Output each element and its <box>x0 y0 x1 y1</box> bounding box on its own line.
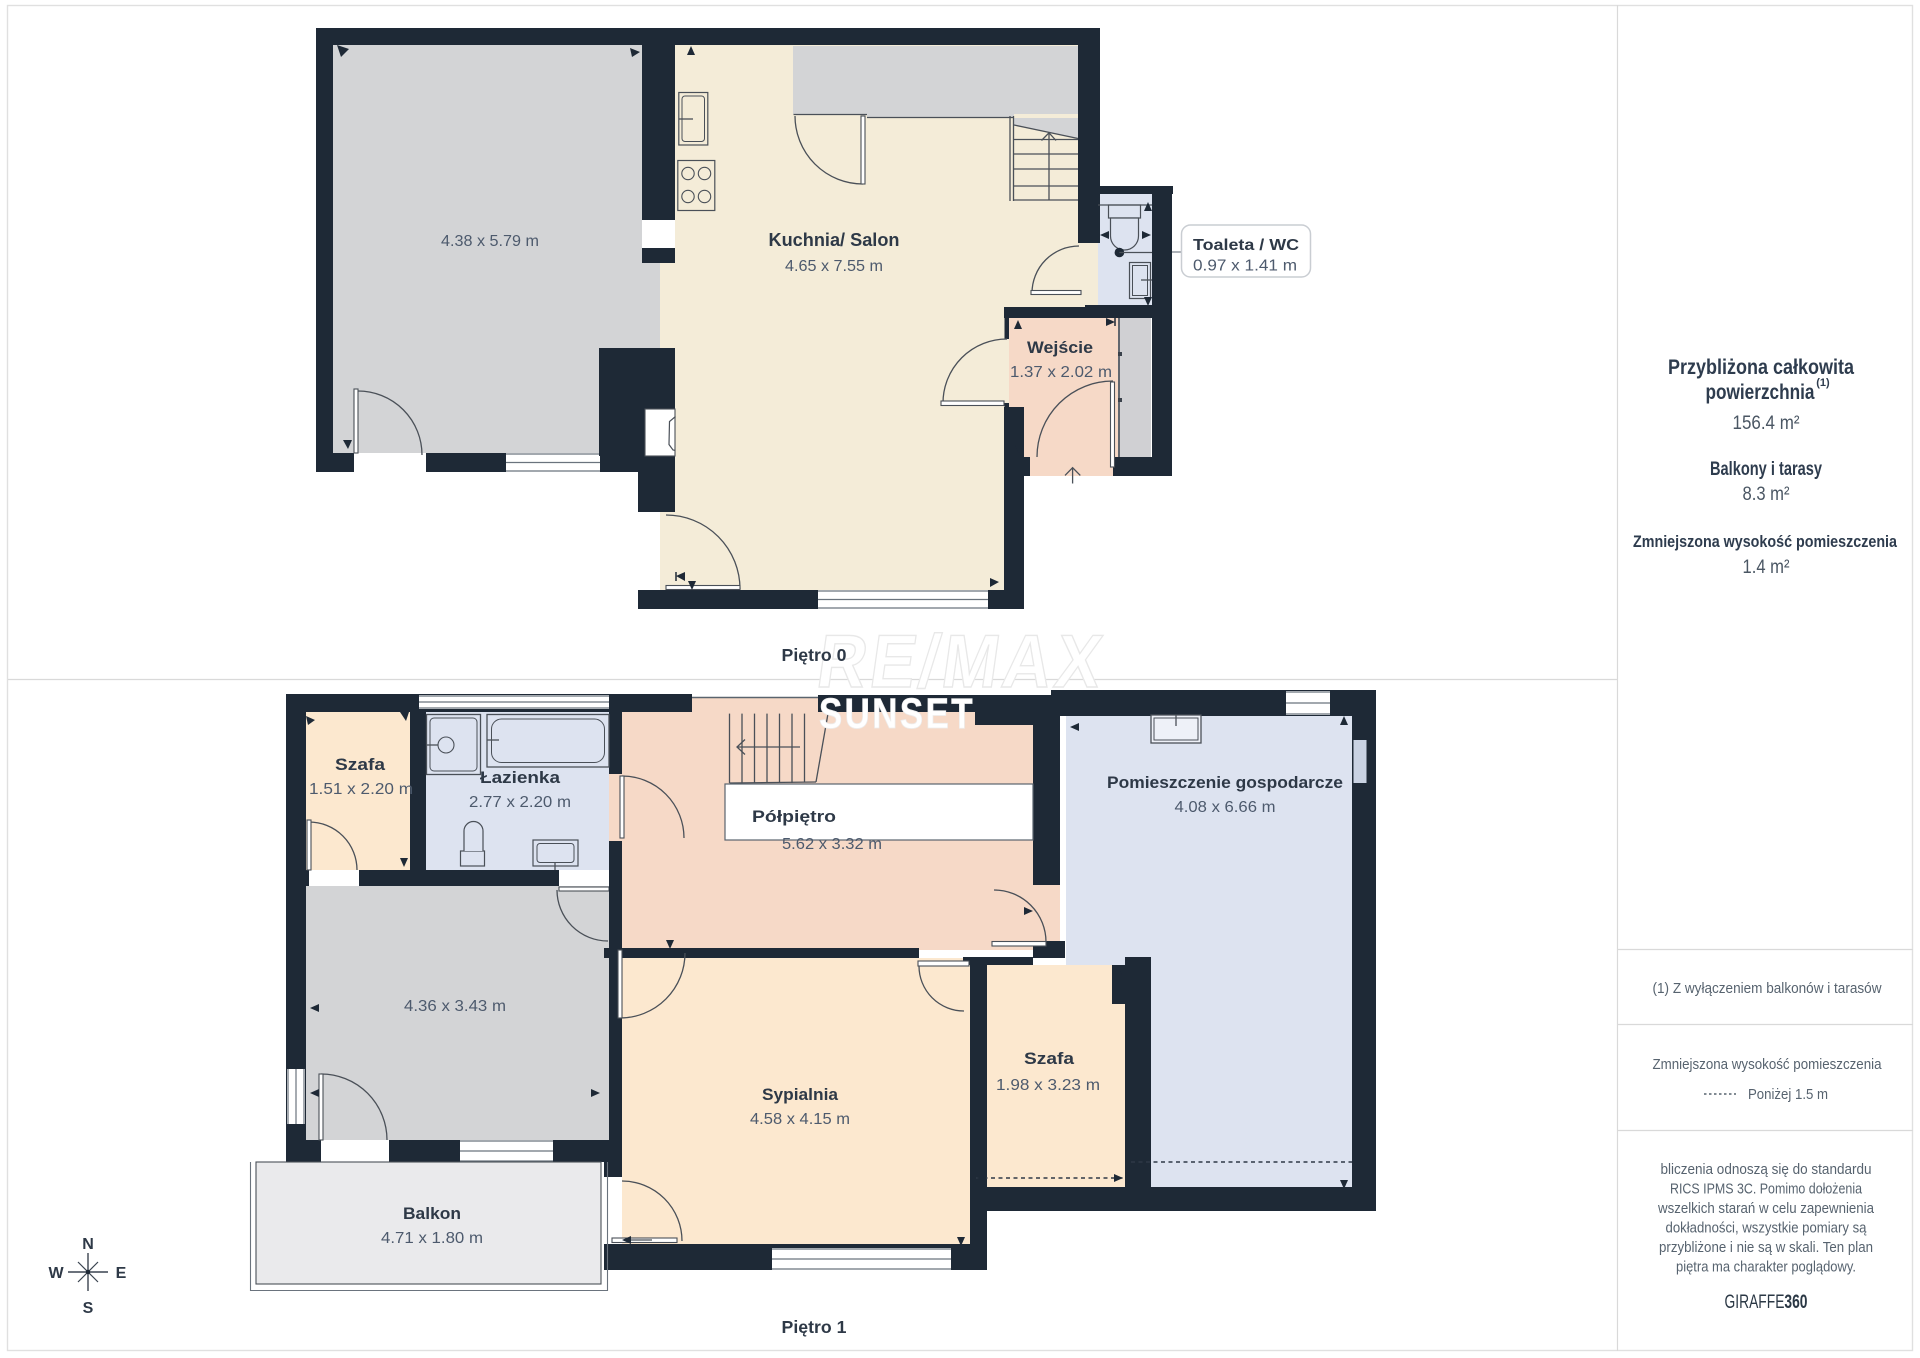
svg-text:wszelkich starań w celu zapewn: wszelkich starań w celu zapewnienia <box>1657 1201 1875 1217</box>
svg-text:dokładności, wszystkie pomiary: dokładności, wszystkie pomiary są <box>1666 1221 1868 1237</box>
svg-text:Balkon: Balkon <box>403 1204 461 1223</box>
svg-text:4.38 x 5.79 m: 4.38 x 5.79 m <box>441 233 539 250</box>
svg-text:8.3 m²: 8.3 m² <box>1743 484 1790 505</box>
svg-text:4.71 x 1.80 m: 4.71 x 1.80 m <box>381 1230 483 1247</box>
svg-text:N: N <box>82 1236 94 1253</box>
svg-text:Wejście: Wejście <box>1027 338 1093 357</box>
svg-text:1.98 x 3.23 m: 1.98 x 3.23 m <box>996 1077 1100 1094</box>
svg-text:Pomieszczenie gospodarcze: Pomieszczenie gospodarcze <box>1107 773 1343 792</box>
svg-text:Zmniejszona wysokość pomieszcz: Zmniejszona wysokość pomieszczenia <box>1653 1057 1883 1073</box>
svg-text:Szafa: Szafa <box>1024 1049 1075 1068</box>
svg-text:4.36 x 3.43 m: 4.36 x 3.43 m <box>404 998 506 1015</box>
svg-text:Balkony i tarasy: Balkony i tarasy <box>1710 459 1822 480</box>
svg-text:Piętro 1: Piętro 1 <box>782 1317 847 1337</box>
svg-text:przybliżone i nie są w skali.: przybliżone i nie są w skali. Ten plan <box>1659 1240 1873 1256</box>
svg-text:Toaleta / WC: Toaleta / WC <box>1193 237 1299 254</box>
svg-text:Kuchnia/ Salon: Kuchnia/ Salon <box>769 230 900 250</box>
svg-text:156.4 m²: 156.4 m² <box>1733 413 1800 434</box>
svg-text:1.4 m²: 1.4 m² <box>1743 557 1790 578</box>
svg-text:4.65 x 7.55 m: 4.65 x 7.55 m <box>785 258 883 275</box>
svg-text:5.62 x 3.32 m: 5.62 x 3.32 m <box>782 836 882 853</box>
svg-text:Sypialnia: Sypialnia <box>762 1085 839 1104</box>
svg-text:W: W <box>48 1265 64 1282</box>
svg-text:Przybliżona całkowita: Przybliżona całkowita <box>1668 356 1854 379</box>
svg-text:1.37 x 2.02 m: 1.37 x 2.02 m <box>1010 364 1112 381</box>
svg-text:Piętro 0: Piętro 0 <box>782 645 847 665</box>
svg-text:piętra ma charakter poglądowy.: piętra ma charakter poglądowy. <box>1676 1260 1856 1276</box>
svg-text:4.08 x 6.66 m: 4.08 x 6.66 m <box>1175 799 1276 816</box>
svg-text:Poniżej 1.5 m: Poniżej 1.5 m <box>1748 1087 1828 1103</box>
svg-text:Szafa: Szafa <box>335 755 386 774</box>
svg-text:S: S <box>83 1300 94 1317</box>
svg-text:4.58 x 4.15 m: 4.58 x 4.15 m <box>750 1111 850 1128</box>
svg-text:Łazienka: Łazienka <box>480 768 561 787</box>
svg-text:RICS IPMS 3C. Pomimo dołożenia: RICS IPMS 3C. Pomimo dołożenia <box>1670 1182 1863 1198</box>
svg-text:GIRAFFE360: GIRAFFE360 <box>1725 1292 1808 1313</box>
svg-text:Półpiętro: Półpiętro <box>752 807 836 826</box>
svg-text:(1) Z wyłączeniem balkonów i t: (1) Z wyłączeniem balkonów i tarasów <box>1653 981 1882 997</box>
svg-text:Zmniejszona wysokość pomieszcz: Zmniejszona wysokość pomieszczenia <box>1633 532 1897 551</box>
svg-text:E: E <box>116 1265 127 1282</box>
svg-text:bliczenia odnoszą się do stand: bliczenia odnoszą się do standardu <box>1661 1162 1872 1178</box>
svg-text:powierzchnia: powierzchnia <box>1706 381 1815 404</box>
svg-text:0.97 x 1.41 m: 0.97 x 1.41 m <box>1193 258 1297 275</box>
svg-text:1.51 x 2.20 m: 1.51 x 2.20 m <box>309 781 413 798</box>
svg-text:2.77 x 2.20 m: 2.77 x 2.20 m <box>469 794 571 811</box>
svg-text:(1): (1) <box>1816 377 1830 389</box>
svg-text:SUNSET: SUNSET <box>819 690 975 738</box>
